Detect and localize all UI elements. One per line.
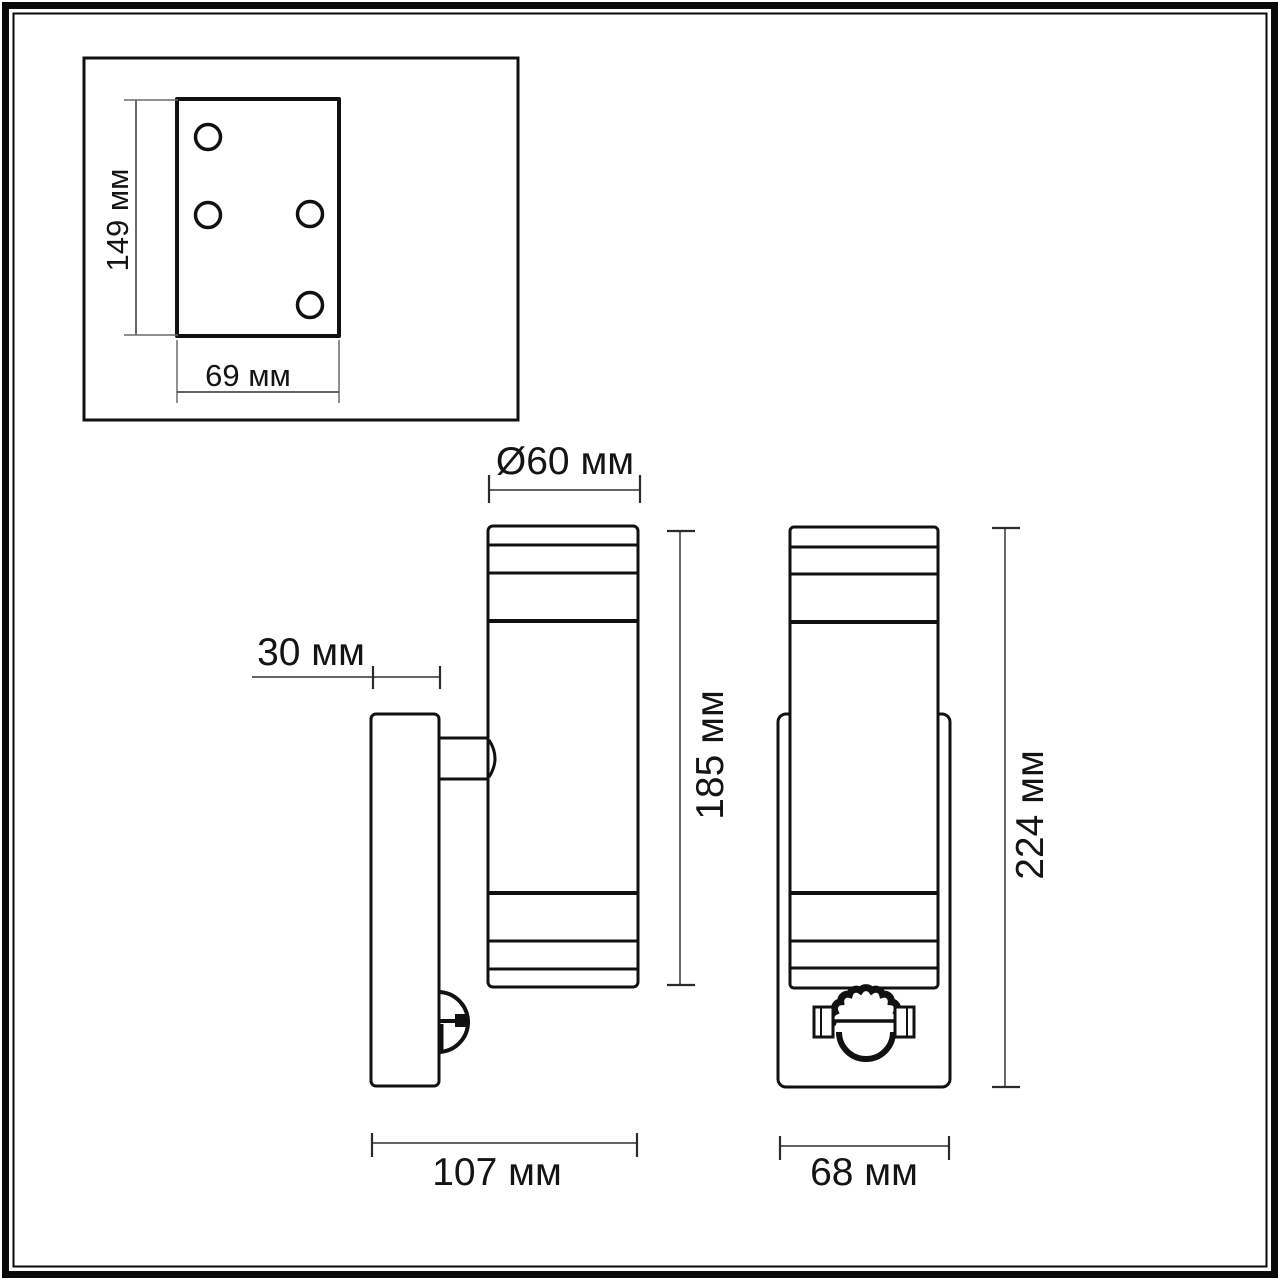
dim-diameter: Ø60 мм xyxy=(489,440,640,503)
technical-drawing: 149 мм 69 мм xyxy=(0,0,1280,1280)
side-view xyxy=(371,526,638,1086)
side-lamp-body xyxy=(488,526,638,987)
front-lamp-body xyxy=(790,527,938,988)
dim-total-depth: 107 мм xyxy=(372,1133,637,1194)
dim-front-plate-width-label: 68 мм xyxy=(810,1151,918,1194)
sensor-bracket-left xyxy=(814,1007,833,1037)
sensor-bracket-right xyxy=(895,1007,914,1037)
dim-body-height-label: 185 мм xyxy=(689,690,732,820)
dim-plate-depth-label: 30 мм xyxy=(257,631,365,674)
dim-total-height-label: 224 мм xyxy=(1009,750,1052,880)
dim-plate-depth: 30 мм xyxy=(252,631,440,689)
front-view xyxy=(778,527,950,1087)
dim-total-height: 224 мм xyxy=(992,528,1052,1087)
drawing-page: 149 мм 69 мм xyxy=(0,0,1280,1280)
mounting-plate-view: 149 мм 69 мм xyxy=(84,58,518,420)
dim-front-plate-width: 68 мм xyxy=(780,1136,949,1194)
dim-total-depth-label: 107 мм xyxy=(432,1151,562,1194)
dim-plate-width-label: 69 мм xyxy=(205,358,291,393)
inset-box xyxy=(84,58,518,420)
side-motion-sensor xyxy=(438,992,468,1052)
dim-plate-height-label: 149 мм xyxy=(100,169,135,272)
side-wall-plate xyxy=(371,714,439,1086)
side-mounting-arm xyxy=(439,738,489,779)
dim-body-height: 185 мм xyxy=(667,531,732,985)
sensor-clip xyxy=(455,1014,468,1027)
dim-diameter-label: Ø60 мм xyxy=(496,440,634,483)
